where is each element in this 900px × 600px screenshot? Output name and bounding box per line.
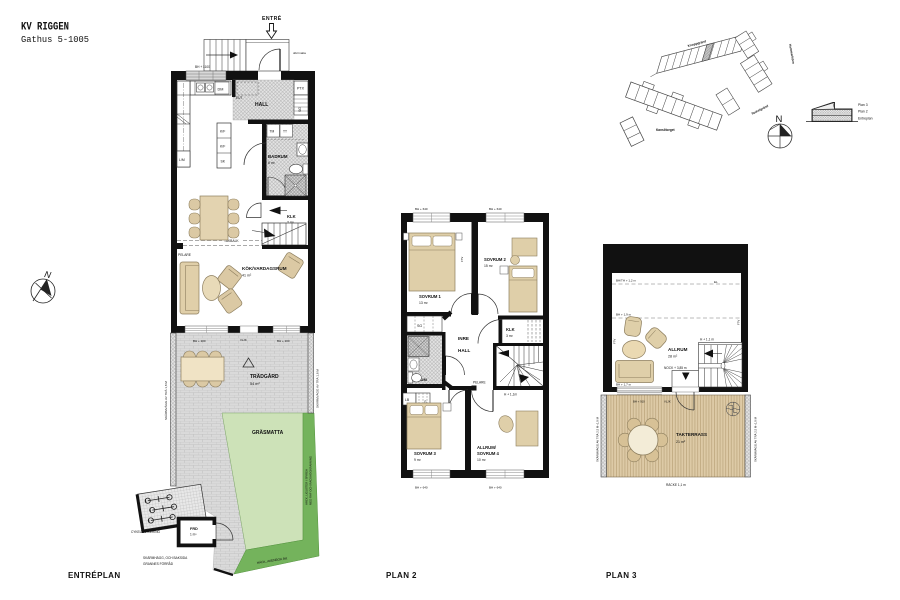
svg-text:SKÄRMVÄGG AV TRÄ 2,5 M+1,9 M: SKÄRMVÄGG AV TRÄ 2,5 M+1,9 M <box>596 416 600 462</box>
svg-text:BH + 200: BH + 200 <box>193 339 206 343</box>
svg-text:KLK: KLK <box>506 327 515 332</box>
svg-text:21 m²: 21 m² <box>676 440 686 444</box>
svg-text:FTV: FTV <box>467 427 471 432</box>
svg-text:Plan 3: Plan 3 <box>858 103 868 107</box>
svg-text:GRÄSMATTA: GRÄSMATTA <box>252 429 284 436</box>
svg-text:INRE: INRE <box>458 336 469 341</box>
svg-text:FTV: FTV <box>309 289 313 295</box>
svg-text:SKÄRMHÄGG, OCH BAKSIDA: SKÄRMHÄGG, OCH BAKSIDA <box>143 556 188 560</box>
svg-text:L/M: L/M <box>179 158 185 162</box>
svg-text:TAKTERRASS: TAKTERRASS <box>676 432 707 437</box>
svg-text:DM: DM <box>218 88 224 92</box>
svg-text:SK: SK <box>221 160 226 164</box>
svg-text:N: N <box>776 114 783 125</box>
svg-text:NOCK + 3,85 m: NOCK + 3,85 m <box>664 366 687 370</box>
svg-text:9 m²: 9 m² <box>414 458 422 462</box>
svg-text:BH + 1,7 m: BH + 1,7 m <box>616 383 632 387</box>
svg-text:54 m²: 54 m² <box>250 382 260 386</box>
svg-text:PELARE: PELARE <box>178 253 192 257</box>
svg-text:6 m²: 6 m² <box>268 161 276 165</box>
svg-text:HALL: HALL <box>458 348 470 353</box>
svg-text:VLJK: VLJK <box>664 400 671 404</box>
svg-text:SKÄRMVÄGG AV TRÄ 1,8 M: SKÄRMVÄGG AV TRÄ 1,8 M <box>316 369 320 408</box>
svg-text:Kanslitorget: Kanslitorget <box>656 128 676 132</box>
svg-text:CYKELPARKERING: CYKELPARKERING <box>131 530 161 534</box>
svg-text:PLAN 3: PLAN 3 <box>606 571 637 580</box>
svg-text:15 m²: 15 m² <box>484 264 494 268</box>
svg-text:PELARE: PELARE <box>473 381 486 385</box>
svg-text:GRANNES FÖRRÅD: GRANNES FÖRRÅD <box>143 561 174 566</box>
svg-text:VLJK: VLJK <box>240 338 247 342</box>
svg-text:PLAN 2: PLAN 2 <box>386 571 417 580</box>
svg-text:SOVRUM 3: SOVRUM 3 <box>414 451 437 456</box>
svg-text:SKÄRMVÄGG AV TRÄ 1,8 M: SKÄRMVÄGG AV TRÄ 1,8 M <box>164 381 168 420</box>
svg-text:Entreplan: Entreplan <box>858 117 873 121</box>
svg-text:1 m²: 1 m² <box>190 533 196 537</box>
svg-text:SG: SG <box>298 107 302 112</box>
svg-text:K/F: K/F <box>220 145 225 149</box>
svg-text:K/F: K/F <box>220 130 225 134</box>
svg-text:SOVRUM 1: SOVRUM 1 <box>419 294 442 299</box>
svg-text:SG: SG <box>417 324 422 328</box>
svg-text:KÖK/VARDAGSRUM: KÖK/VARDAGSRUM <box>242 265 287 271</box>
svg-text:28 m²: 28 m² <box>668 355 678 359</box>
svg-text:TM: TM <box>270 130 275 134</box>
svg-text:SOVRUM 2: SOVRUM 2 <box>484 257 507 262</box>
svg-text:TRÄDGÅRD: TRÄDGÅRD <box>250 373 279 380</box>
svg-text:ENTRÉ: ENTRÉ <box>262 14 282 22</box>
svg-text:SKÄRMVÄGG AV TRÄ 2,5 M+1,9 M: SKÄRMVÄGG AV TRÄ 2,5 M+1,9 M <box>754 416 758 462</box>
svg-text:LB: LB <box>405 398 410 402</box>
svg-text:BH + 640: BH + 640 <box>415 207 428 211</box>
svg-text:EL: EL <box>714 280 718 284</box>
svg-text:3 m²: 3 m² <box>506 334 514 338</box>
svg-text:4 m²: 4 m² <box>409 383 415 387</box>
svg-text:RÄCKE 1,1 m: RÄCKE 1,1 m <box>666 483 686 487</box>
svg-text:dörrmatta: dörrmatta <box>293 51 306 55</box>
svg-text:MED RAF OCH RACKHÖGKRAVNING: MED RAF OCH RACKHÖGKRAVNING <box>309 456 313 505</box>
svg-text:13 m²: 13 m² <box>419 301 429 305</box>
svg-text:Plan 2: Plan 2 <box>858 110 868 114</box>
svg-text:FRD: FRD <box>190 527 198 531</box>
svg-text:H + 1,1m: H + 1,1m <box>504 393 517 397</box>
svg-text:BH + 640: BH + 640 <box>415 486 428 490</box>
svg-text:FTV: FTV <box>737 320 741 325</box>
svg-text:BH + 910: BH + 910 <box>633 400 645 404</box>
svg-text:KLK: KLK <box>287 214 296 219</box>
svg-text:Gathus 5-1005: Gathus 5-1005 <box>21 34 89 45</box>
svg-text:PTX: PTX <box>297 87 305 91</box>
svg-text:ALLRUM/: ALLRUM/ <box>477 445 497 450</box>
svg-text:EUT: EUT <box>236 96 242 100</box>
svg-text:BH + 1100: BH + 1100 <box>195 65 210 69</box>
svg-text:ENTRÉPLAN: ENTRÉPLAN <box>68 571 121 580</box>
svg-text:TT: TT <box>283 130 287 134</box>
svg-text:BH + 1,9 m: BH + 1,9 m <box>616 313 632 317</box>
svg-text:BH + 640: BH + 640 <box>489 486 502 490</box>
svg-text:BH + 640: BH + 640 <box>489 207 502 211</box>
svg-text:BADRUM: BADRUM <box>268 154 288 159</box>
svg-text:BH + 200: BH + 200 <box>277 339 290 343</box>
svg-text:FTV: FTV <box>613 339 617 344</box>
svg-text:KV RIGGEN: KV RIGGEN <box>21 22 69 34</box>
svg-text:FTV: FTV <box>460 257 464 262</box>
svg-text:H + 1,1 m: H + 1,1 m <box>700 338 714 342</box>
svg-text:10 m²: 10 m² <box>477 458 487 462</box>
svg-text:SOVRUM 4: SOVRUM 4 <box>477 451 500 456</box>
svg-text:41 m²: 41 m² <box>242 274 252 278</box>
svg-text:HALL: HALL <box>255 102 268 108</box>
svg-text:ALLRUM: ALLRUM <box>668 347 688 352</box>
svg-text:BH/TH + 1,2 m: BH/TH + 1,2 m <box>616 279 636 283</box>
